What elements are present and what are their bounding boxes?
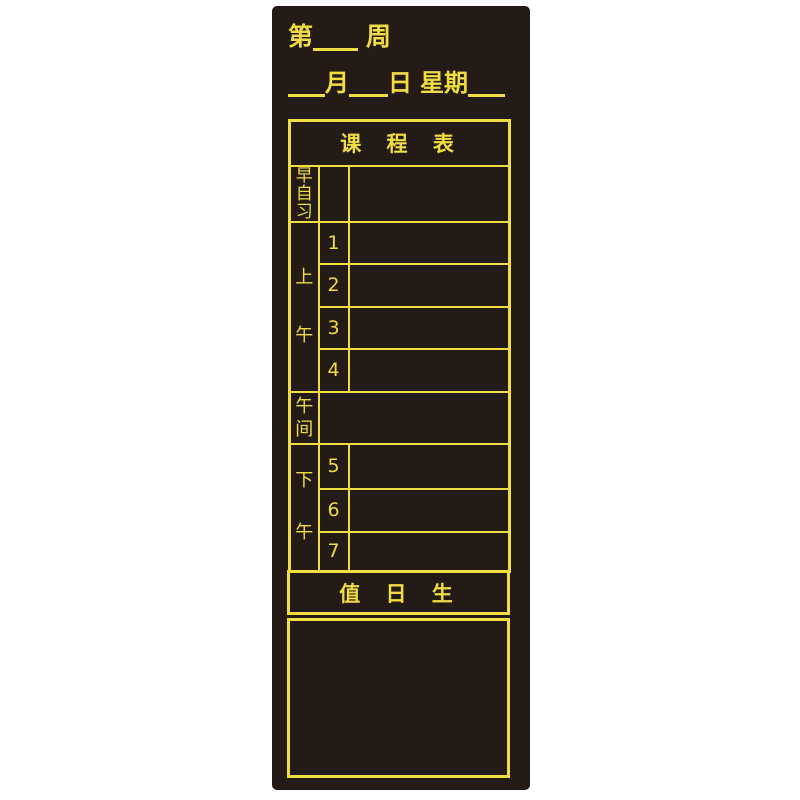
month-blank-line <box>288 94 325 97</box>
section-label-morning: 上午 <box>290 222 319 392</box>
period-number-2: 2 <box>319 264 349 307</box>
row-morning-self-study: 早自习 <box>290 166 510 222</box>
row-period-2: 2 <box>290 264 510 307</box>
period-number-1: 1 <box>319 222 349 264</box>
period-cell-empty <box>319 166 349 222</box>
week-blank-line <box>313 48 358 51</box>
schedule-table: 课 程 表 早自习 上午 1 2 3 4 <box>288 119 511 573</box>
row-period-1: 上午 1 <box>290 222 510 264</box>
content-cell-period-7 <box>349 532 510 572</box>
schedule-title-row: 课 程 表 <box>290 121 510 166</box>
duty-notes-box <box>287 618 510 778</box>
row-noon: 午间 <box>290 392 510 444</box>
content-cell-period-5 <box>349 444 510 489</box>
day-label: 日 <box>388 68 412 98</box>
period-number-4: 4 <box>319 349 349 392</box>
content-cell-period-1 <box>349 222 510 264</box>
date-line: 月 日 星期 <box>288 68 505 98</box>
section-label-morning-self-study: 早自习 <box>290 166 319 222</box>
weekday-label: 星期 <box>420 68 468 98</box>
week-suffix-label: 周 <box>366 22 391 52</box>
period-number-7: 7 <box>319 532 349 572</box>
week-prefix-label: 第 <box>288 22 313 52</box>
week-line: 第 周 <box>288 22 391 52</box>
row-period-7: 7 <box>290 532 510 572</box>
period-number-6: 6 <box>319 489 349 532</box>
section-label-afternoon: 下午 <box>290 444 319 572</box>
row-period-3: 3 <box>290 307 510 349</box>
row-period-5: 下午 5 <box>290 444 510 489</box>
content-cell-noon <box>319 392 510 444</box>
weekday-blank-line <box>468 94 505 97</box>
row-period-6: 6 <box>290 489 510 532</box>
content-cell-morning-self-study <box>349 166 510 222</box>
content-cell-period-2 <box>349 264 510 307</box>
content-cell-period-4 <box>349 349 510 392</box>
duty-title: 值 日 生 <box>339 578 458 608</box>
row-period-4: 4 <box>290 349 510 392</box>
day-blank-line <box>349 94 388 97</box>
content-cell-period-6 <box>349 489 510 532</box>
period-number-3: 3 <box>319 307 349 349</box>
section-label-noon: 午间 <box>290 392 319 444</box>
month-label: 月 <box>325 68 349 98</box>
schedule-title: 课 程 表 <box>290 121 510 166</box>
schedule-board: 第 周 月 日 星期 课 程 表 早自习 上午 <box>272 6 530 790</box>
duty-header: 值 日 生 <box>287 570 510 615</box>
period-number-5: 5 <box>319 444 349 489</box>
content-cell-period-3 <box>349 307 510 349</box>
